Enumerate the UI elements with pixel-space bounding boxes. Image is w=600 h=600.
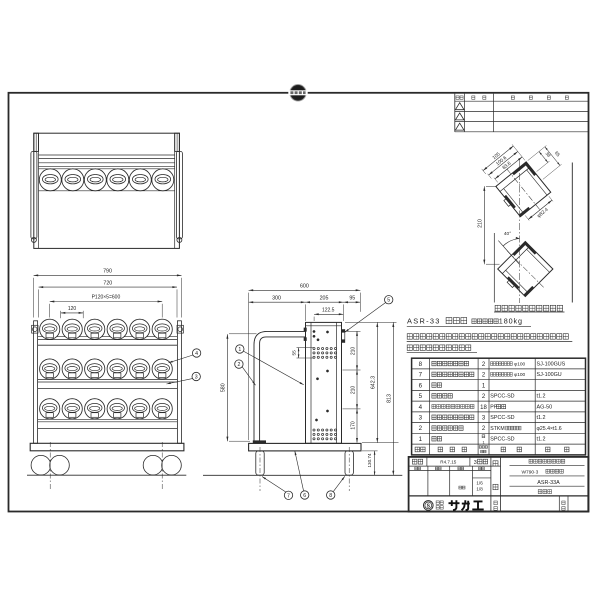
svg-text:1: 1: [482, 440, 484, 444]
svg-text:4: 4: [195, 351, 198, 357]
svg-text:3: 3: [419, 415, 423, 422]
svg-text:210: 210: [351, 386, 357, 395]
svg-text:ASR-33: ASR-33: [407, 317, 441, 326]
svg-text:642.3: 642.3: [371, 376, 377, 389]
svg-text:R4.7.15: R4.7.15: [440, 460, 457, 465]
svg-text:720: 720: [103, 281, 112, 287]
svg-text:φ25.4×t1.6: φ25.4×t1.6: [537, 426, 562, 432]
svg-text:8: 8: [329, 493, 332, 499]
svg-text:580: 580: [221, 383, 227, 392]
svg-text:SPCC-SD: SPCC-SD: [490, 394, 514, 400]
svg-text:813: 813: [387, 394, 393, 403]
svg-text:ASR-33A: ASR-33A: [537, 480, 560, 486]
svg-text:SPCC-SD: SPCC-SD: [490, 415, 514, 421]
svg-text:1/6: 1/6: [476, 480, 483, 485]
svg-text:55: 55: [291, 350, 297, 356]
svg-text:φ100: φ100: [514, 362, 525, 368]
svg-text:130.74: 130.74: [367, 453, 372, 467]
svg-text:3: 3: [474, 460, 477, 466]
svg-text:SJ-100GUS: SJ-100GUS: [537, 362, 566, 368]
svg-text:210: 210: [478, 219, 484, 228]
svg-text:5: 5: [387, 298, 390, 304]
svg-text:122.5: 122.5: [322, 308, 335, 314]
svg-text:8: 8: [419, 361, 423, 368]
svg-text:t1.2: t1.2: [537, 415, 546, 421]
svg-text:2: 2: [237, 362, 240, 368]
svg-text:1: 1: [419, 436, 423, 443]
svg-text:3: 3: [195, 375, 198, 381]
svg-text:120: 120: [68, 306, 77, 312]
svg-text:210: 210: [351, 347, 357, 356]
svg-text:1/8: 1/8: [476, 487, 483, 492]
svg-text:STKM: STKM: [490, 426, 504, 432]
svg-text:170: 170: [351, 421, 357, 430]
svg-text:7: 7: [419, 372, 423, 379]
svg-text:6: 6: [303, 493, 306, 499]
svg-text:W790·3: W790·3: [522, 469, 539, 475]
svg-text:6: 6: [419, 382, 423, 389]
svg-text:40°: 40°: [504, 231, 511, 237]
svg-text:18: 18: [480, 405, 487, 411]
svg-text:790: 790: [103, 269, 112, 275]
svg-text:t1.2: t1.2: [537, 394, 546, 400]
svg-text:300: 300: [272, 296, 281, 302]
svg-text:95: 95: [349, 296, 355, 302]
svg-text:SJ-100GU: SJ-100GU: [537, 372, 562, 378]
svg-text:P120×5=600: P120×5=600: [92, 295, 121, 301]
svg-text:2: 2: [419, 425, 423, 432]
svg-text:AG-50: AG-50: [537, 405, 553, 411]
svg-text:4: 4: [419, 404, 423, 411]
svg-text:7: 7: [287, 493, 290, 499]
svg-text:t1.2: t1.2: [537, 437, 546, 443]
svg-text:205: 205: [320, 296, 329, 302]
svg-text:180kg: 180kg: [499, 317, 523, 326]
svg-text:5: 5: [419, 393, 423, 400]
svg-text:SPCC-SD: SPCC-SD: [490, 437, 514, 443]
svg-text:φ100: φ100: [514, 372, 525, 378]
svg-text:600: 600: [300, 284, 309, 290]
svg-text:1: 1: [238, 347, 241, 353]
